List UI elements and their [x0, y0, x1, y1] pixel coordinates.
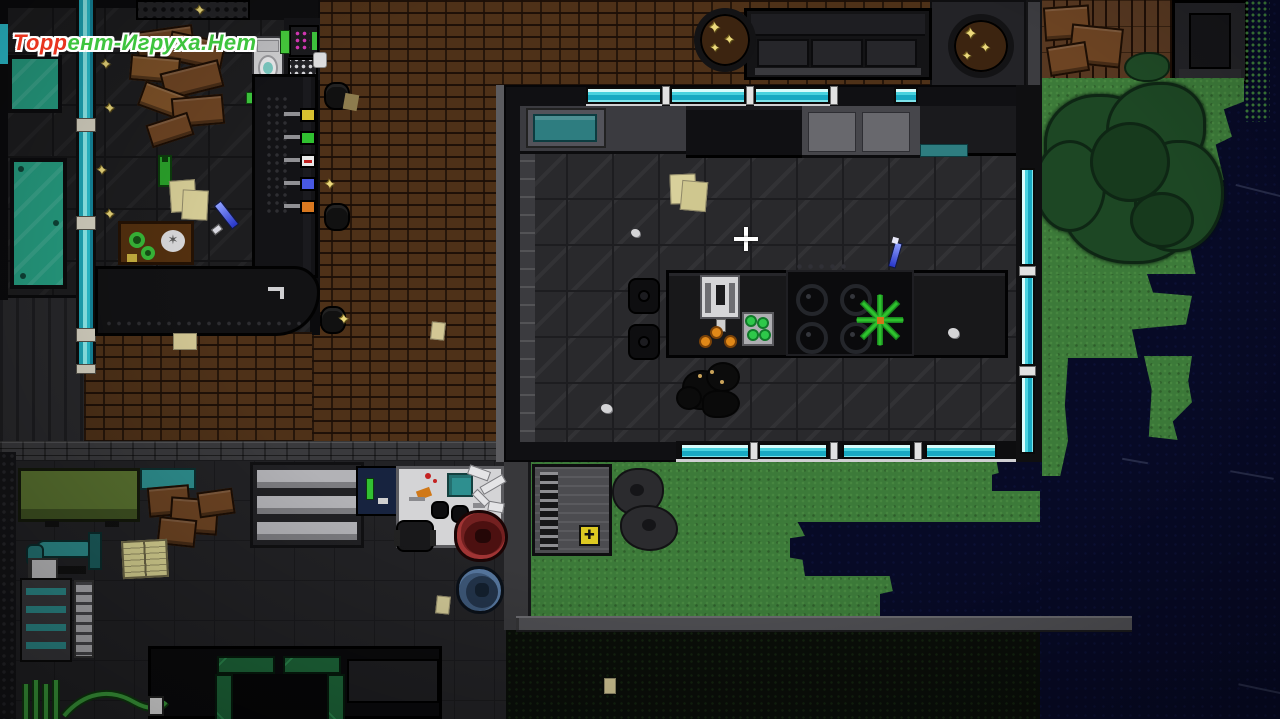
gray-tool	[409, 497, 425, 501]
tree-shadow	[880, 570, 1040, 618]
green-bottle	[366, 478, 374, 500]
beer-tap-blue	[300, 177, 316, 191]
corner-sofa	[1172, 0, 1248, 84]
grass-dither-edge	[1244, 0, 1270, 122]
window-south	[758, 443, 828, 459]
machine-stripe	[26, 624, 66, 631]
kitchen-stove-top	[686, 106, 802, 158]
window-end-cap	[76, 364, 96, 374]
window-post	[830, 86, 838, 105]
island-speaker	[628, 324, 660, 360]
cucumber-slice	[129, 232, 145, 248]
chair-armrest	[430, 530, 436, 546]
sofa-backrest	[751, 14, 925, 36]
cabbage	[757, 317, 769, 329]
window-north	[586, 87, 662, 104]
faucet-icon	[280, 287, 284, 299]
lawn-tongue	[1042, 358, 1068, 476]
patio-edge	[1026, 0, 1042, 90]
bottle-cap	[162, 157, 168, 162]
red-tub	[454, 510, 508, 562]
window-frame-break	[76, 328, 96, 342]
watermark-part-red: Торр	[13, 30, 68, 55]
bushes	[620, 505, 678, 551]
kitchen-counter-dark	[920, 106, 1020, 156]
marble-rail	[283, 656, 341, 674]
stove-burner	[796, 284, 828, 316]
table-leg	[105, 521, 119, 527]
bar-top-wall	[248, 0, 318, 20]
dog-body	[706, 362, 740, 392]
watermark-part-green: ент-Игруха.Нет	[68, 30, 257, 55]
cardboard-box	[1046, 41, 1090, 77]
glass-shards: ✦	[324, 178, 336, 192]
beer-tap-white	[300, 154, 316, 168]
pocket	[53, 220, 59, 226]
white-item	[313, 52, 327, 68]
window-north	[670, 87, 746, 104]
pool-table	[10, 158, 67, 289]
crosshair-cursor[interactable]	[734, 227, 758, 251]
gold-leaves: ✦	[724, 34, 735, 47]
window-post	[914, 442, 922, 460]
open-book	[121, 539, 169, 579]
sticky-notes	[680, 180, 709, 212]
vegetable-crate	[742, 312, 774, 346]
green-table	[18, 468, 140, 522]
hatch-ladder	[540, 472, 558, 550]
blood-spot	[425, 473, 431, 479]
bench-frame	[88, 532, 102, 570]
gold-leaves: ✦	[964, 26, 977, 42]
dog-marking	[698, 374, 702, 378]
blender-side	[729, 283, 735, 313]
counter-board	[808, 112, 856, 152]
scattered-papers	[604, 678, 616, 694]
marble-rail	[327, 674, 345, 719]
window-south	[680, 443, 750, 459]
wood-debris	[145, 112, 194, 148]
bush	[1124, 52, 1170, 82]
shelf-row	[257, 522, 357, 540]
black-pot	[431, 501, 449, 519]
machine-stripe	[26, 642, 66, 649]
knife-blade	[888, 241, 903, 268]
sink-basin	[533, 114, 597, 142]
counter-studs	[104, 319, 304, 328]
striped-machine	[20, 578, 72, 662]
orange-fruit	[699, 335, 712, 348]
scattered-papers	[173, 333, 197, 350]
window-post	[830, 442, 838, 460]
bar-counter-horizontal	[95, 266, 320, 336]
scattered-papers	[435, 595, 451, 614]
glass-shards: ✦	[104, 102, 116, 116]
dog-marking	[710, 370, 714, 374]
window-post	[1019, 366, 1036, 376]
register-buttons	[294, 30, 310, 52]
sofa-cushion	[865, 39, 917, 67]
dog-marking	[720, 380, 724, 384]
window-post	[746, 86, 754, 105]
vent-grate	[136, 0, 250, 20]
speaker-ring	[638, 336, 650, 348]
counter-sink-strip	[920, 144, 968, 157]
window-east	[1020, 276, 1035, 366]
window-frame-break	[76, 118, 96, 132]
kitchen-counter-gray	[802, 106, 920, 158]
bar-top-wall	[0, 0, 138, 8]
glass-window-wall	[76, 0, 96, 374]
knife	[210, 198, 240, 238]
window-south	[925, 443, 997, 459]
orange-fruit	[724, 335, 737, 348]
garden-wall-strip	[504, 462, 531, 630]
bone	[467, 465, 491, 482]
sofa	[744, 8, 932, 80]
marble-rail	[217, 656, 275, 674]
window-post	[1019, 266, 1036, 276]
glass-shards: ✦	[104, 208, 116, 222]
red-tub-center	[475, 529, 491, 543]
pool-table	[8, 55, 62, 113]
glass-shards: ✦	[96, 164, 108, 178]
cardboard-boxes	[1042, 0, 1134, 78]
window-north-small	[894, 87, 918, 104]
sofa-cushion	[757, 39, 809, 67]
window-south	[842, 443, 912, 459]
kitchen-sink	[526, 108, 606, 148]
tree-canopy	[1034, 82, 1226, 278]
scattered-papers	[430, 321, 446, 340]
island-speaker	[628, 278, 660, 314]
dead-dog	[676, 360, 744, 420]
machine-stripe	[26, 606, 66, 613]
gold-leaves: ✦	[962, 50, 972, 62]
white-mark	[378, 498, 388, 504]
window-east	[1020, 168, 1035, 266]
machine-side-column	[74, 580, 94, 658]
blender-slot	[716, 285, 725, 305]
office-chair	[396, 520, 434, 552]
tan-patch	[343, 93, 360, 111]
cabbage	[745, 315, 757, 327]
bench-seat	[36, 540, 94, 558]
tap-red-stripe	[304, 160, 312, 163]
kitchen-floor-light-strip	[520, 106, 535, 442]
cabbage	[759, 329, 771, 341]
bush-mark	[630, 484, 644, 496]
pocket	[18, 166, 24, 172]
table-void	[233, 674, 327, 719]
shelf-row	[257, 470, 357, 488]
gold-leaves: ✦	[710, 42, 720, 54]
debris-speck	[631, 229, 640, 237]
food-tray: ✶	[118, 221, 194, 265]
brick-floor-lower	[84, 332, 312, 442]
cabbage	[747, 329, 759, 341]
bar-counter-vertical	[252, 74, 318, 278]
sofa-cushion	[811, 39, 863, 67]
metal-shelves	[250, 462, 364, 548]
toilet-tank	[257, 40, 279, 52]
tree-shadow	[790, 522, 1040, 576]
hazard-sign: ✚	[579, 525, 600, 546]
scattered-papers	[181, 189, 209, 220]
blender	[700, 275, 740, 319]
bush-mark	[642, 519, 656, 531]
blue-tub	[456, 566, 504, 614]
dog-body	[702, 390, 740, 418]
sofa-seat	[1189, 13, 1231, 69]
golden-potted-plant: ✦ ✦ ✦	[694, 8, 756, 72]
gold-leaves: ✦	[980, 42, 991, 55]
pocket	[20, 273, 26, 279]
kitchen-west-outer-edge	[496, 85, 504, 462]
game-viewport: ✶ ✦ ✦ ✦ ✦ ✦ ✦ ✦ ✦ ✦ ✦ ✦ ✦ ✦	[0, 0, 1280, 719]
blue-cabinet	[356, 466, 398, 516]
stove-burner	[796, 322, 828, 354]
marble-rail	[215, 674, 233, 719]
white-box	[148, 696, 164, 716]
green-bottle	[280, 30, 290, 54]
shelf-row	[257, 496, 357, 514]
glass-shards: ✦	[194, 4, 206, 18]
potted-plant	[854, 292, 906, 348]
speaker-ring	[638, 290, 650, 302]
stove-knobs	[794, 263, 848, 270]
window-frame-break	[76, 216, 96, 230]
counter-edge	[303, 77, 311, 275]
sofa-front-edge	[755, 68, 921, 75]
orange-fruit	[710, 326, 723, 339]
glass-shards: ✦	[338, 313, 350, 327]
stone-curb	[516, 616, 1132, 632]
cracked-plate: ✶	[161, 230, 185, 252]
cucumber-slice	[141, 246, 155, 260]
blue-tub-center	[475, 583, 489, 597]
knife-handle	[211, 224, 223, 236]
chair-armrest	[394, 530, 400, 546]
side-extension	[347, 659, 439, 703]
register-display	[312, 32, 317, 50]
counter-board	[862, 112, 910, 152]
window-north	[754, 87, 830, 104]
debris-speck	[601, 404, 612, 413]
broken-drawer	[196, 488, 235, 519]
watermark: Торрент-Игруха.Нет	[13, 30, 256, 56]
dark-terrace	[506, 630, 1040, 719]
gold-leaves: ✦	[708, 20, 721, 36]
beer-tap-green	[300, 131, 316, 145]
green-trim-pool-table	[148, 646, 442, 719]
beer-tap-yellow	[300, 108, 316, 122]
window-east	[1020, 376, 1035, 454]
machine-stripe	[26, 588, 66, 595]
toilet-water	[263, 62, 273, 74]
golden-potted-plant: ✦ ✦ ✦	[948, 14, 1014, 78]
dog-body	[676, 386, 702, 410]
control-box	[28, 558, 58, 580]
glass-shards: ✦	[100, 58, 112, 72]
left-window-segment	[0, 24, 8, 64]
food-bits	[127, 254, 137, 262]
window-post	[662, 86, 670, 105]
debris-speck	[948, 328, 959, 338]
blender-side	[705, 283, 711, 313]
walkway-floor	[0, 295, 84, 462]
window-post	[750, 442, 758, 460]
beer-tap-orange	[300, 200, 316, 214]
maintenance-hatch: ✚	[532, 464, 612, 556]
bar-stool	[324, 203, 350, 231]
blood-spot	[433, 479, 437, 483]
